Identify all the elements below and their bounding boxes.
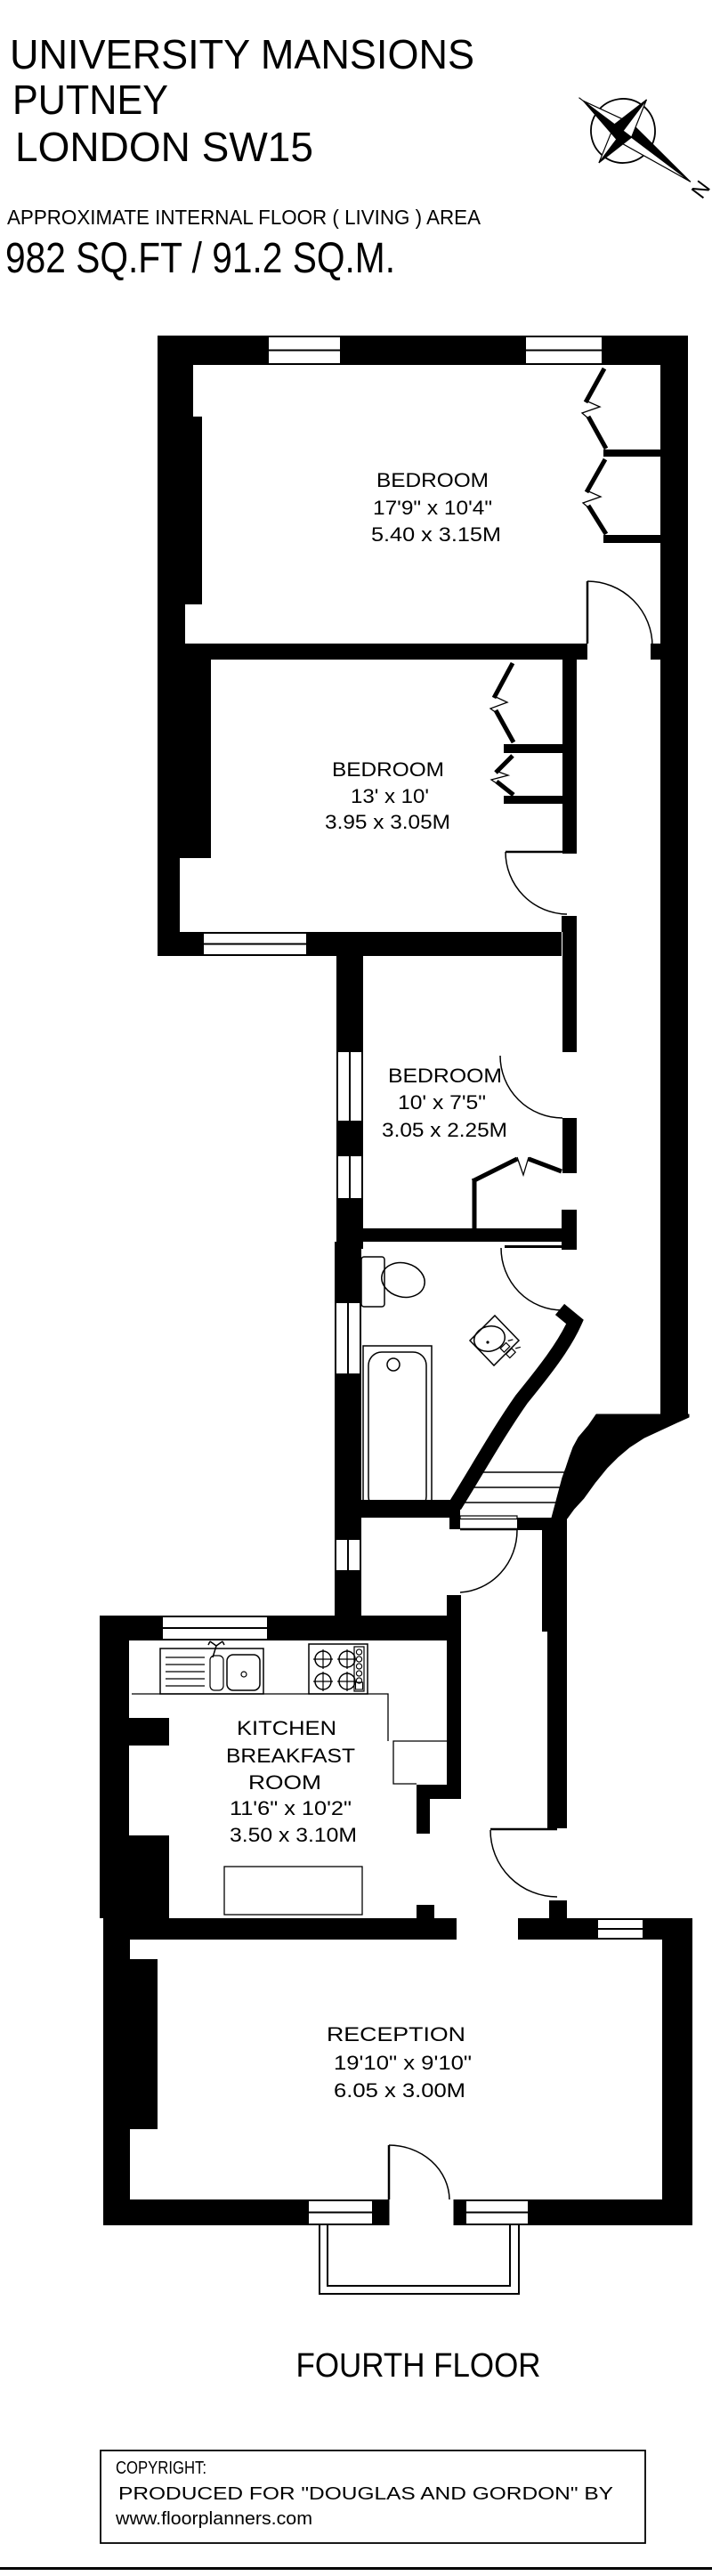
svg-text:3.95 x 3.05M: 3.95 x 3.05M [325, 811, 450, 833]
svg-text:17'9" x 10'4": 17'9" x 10'4" [373, 497, 492, 519]
svg-text:PUTNEY: PUTNEY [12, 77, 168, 123]
svg-text:www.floorplanners.com: www.floorplanners.com [115, 2509, 312, 2529]
svg-text:RECEPTION: RECEPTION [327, 2023, 465, 2045]
svg-text:5.40 x 3.15M: 5.40 x 3.15M [371, 523, 501, 546]
svg-text:ROOM: ROOM [248, 1771, 321, 1794]
svg-text:KITCHEN: KITCHEN [237, 1717, 336, 1739]
svg-text:3.05 x 2.25M: 3.05 x 2.25M [382, 1119, 507, 1141]
svg-text:BREAKFAST: BREAKFAST [226, 1745, 355, 1767]
svg-text:19'10" x 9'10": 19'10" x 9'10" [334, 2052, 472, 2074]
svg-text:COPYRIGHT:: COPYRIGHT: [116, 2459, 206, 2478]
svg-text:6.05 x 3.00M: 6.05 x 3.00M [334, 2079, 465, 2102]
svg-text:982 SQ.FT / 91.2 SQ.M.: 982 SQ.FT / 91.2 SQ.M. [5, 235, 395, 282]
svg-text:BEDROOM: BEDROOM [376, 469, 489, 491]
svg-text:FOURTH FLOOR: FOURTH FLOOR [296, 2347, 541, 2385]
svg-text:BEDROOM: BEDROOM [388, 1065, 502, 1087]
svg-text:PRODUCED FOR "DOUGLAS AND GORD: PRODUCED FOR "DOUGLAS AND GORDON" BY [118, 2484, 613, 2504]
svg-text:10' x 7'5": 10' x 7'5" [398, 1091, 486, 1114]
svg-text:13' x 10': 13' x 10' [351, 785, 429, 807]
svg-text:APPROXIMATE INTERNAL FLOOR ( L: APPROXIMATE INTERNAL FLOOR ( LIVING ) AR… [7, 206, 481, 229]
svg-text:11'6" x 10'2": 11'6" x 10'2" [230, 1797, 352, 1819]
svg-text:LONDON SW15: LONDON SW15 [15, 124, 313, 170]
svg-text:UNIVERSITY MANSIONS: UNIVERSITY MANSIONS [10, 31, 474, 77]
svg-text:BEDROOM: BEDROOM [332, 758, 444, 781]
svg-text:3.50 x 3.10M: 3.50 x 3.10M [230, 1824, 357, 1846]
